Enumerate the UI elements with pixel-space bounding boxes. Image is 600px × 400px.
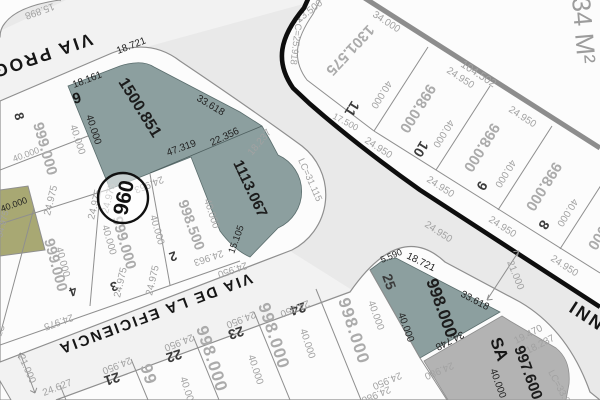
svg-text:34 M²: 34 M²	[566, 0, 600, 65]
